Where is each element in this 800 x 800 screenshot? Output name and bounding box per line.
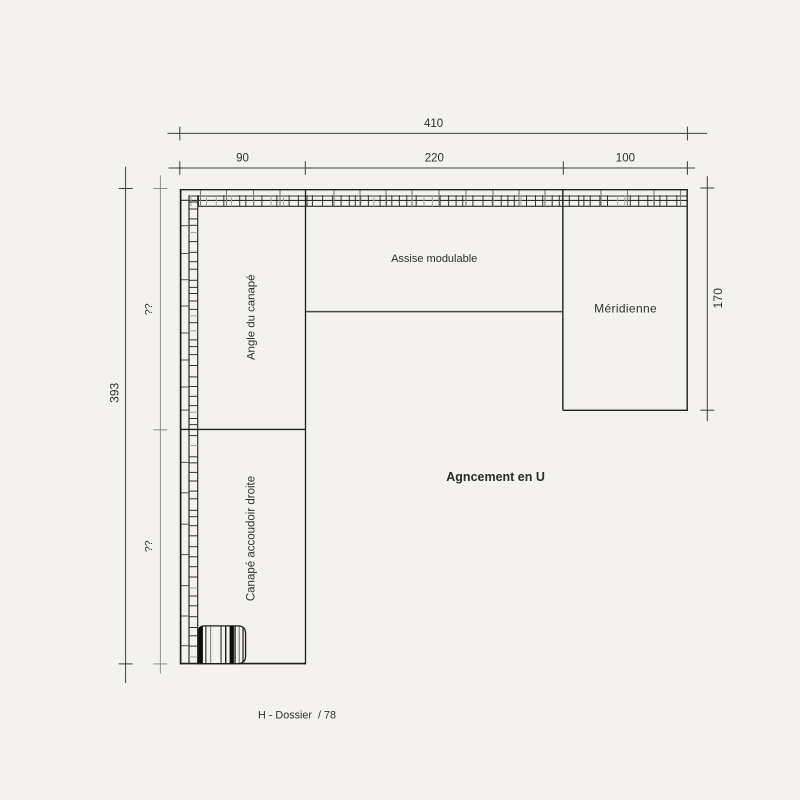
svg-text:H - Dossier: H - Dossier bbox=[258, 709, 312, 721]
svg-text:410: 410 bbox=[424, 118, 443, 130]
svg-text:Méridienne: Méridienne bbox=[594, 302, 657, 316]
svg-text:/ 78: / 78 bbox=[318, 709, 336, 721]
svg-text:??: ?? bbox=[143, 540, 155, 552]
svg-text:Angle du canapé: Angle du canapé bbox=[245, 275, 257, 361]
svg-text:Canapé accoudoir droite: Canapé accoudoir droite bbox=[245, 476, 257, 601]
svg-text:220: 220 bbox=[425, 153, 444, 165]
svg-text:90: 90 bbox=[236, 153, 249, 165]
svg-text:??: ?? bbox=[143, 303, 155, 315]
svg-text:393: 393 bbox=[108, 382, 122, 402]
svg-text:Agncement en U: Agncement en U bbox=[446, 470, 545, 484]
svg-text:170: 170 bbox=[711, 288, 725, 309]
svg-text:100: 100 bbox=[616, 153, 635, 165]
svg-text:Assise modulable: Assise modulable bbox=[391, 253, 477, 265]
